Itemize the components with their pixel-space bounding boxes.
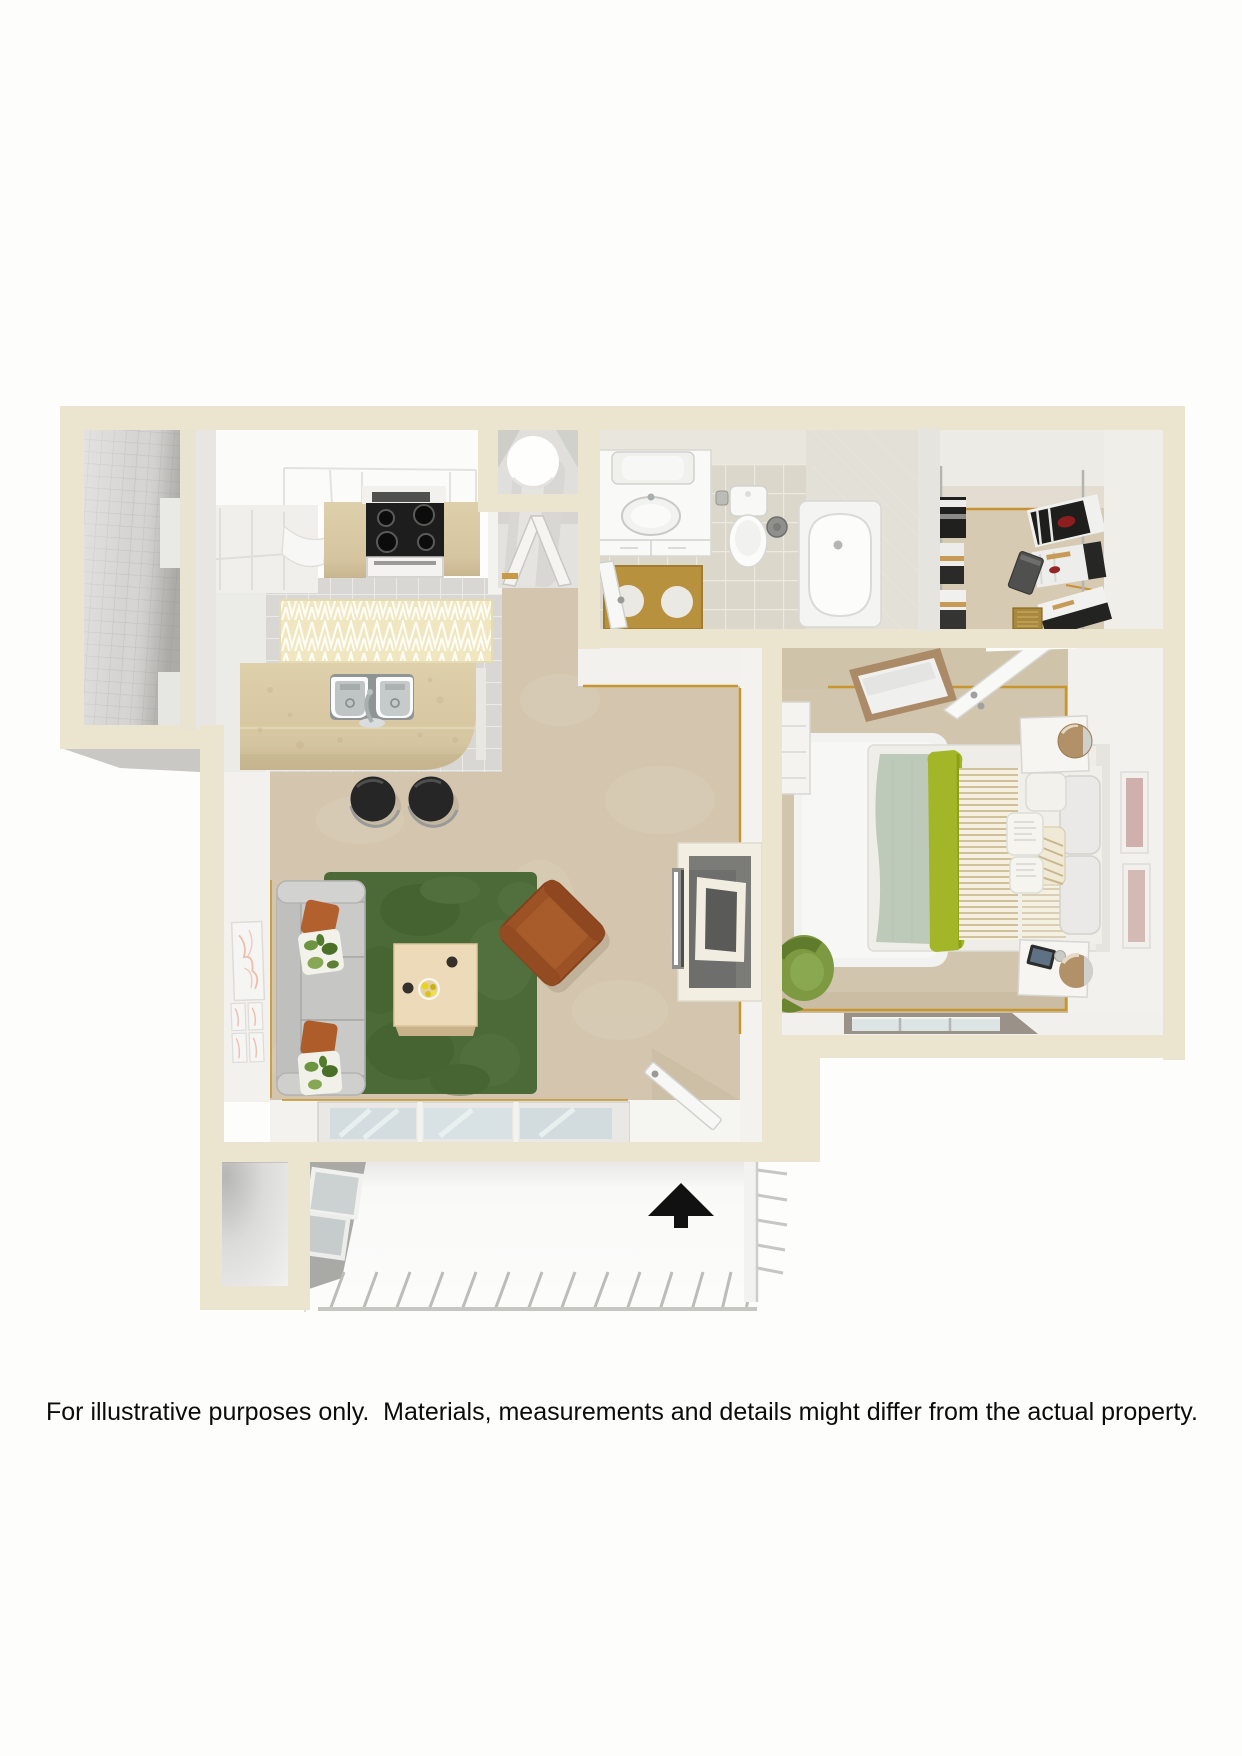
svg-text:For illustrative purposes only: For illustrative purposes only. Material…: [46, 1398, 1198, 1426]
